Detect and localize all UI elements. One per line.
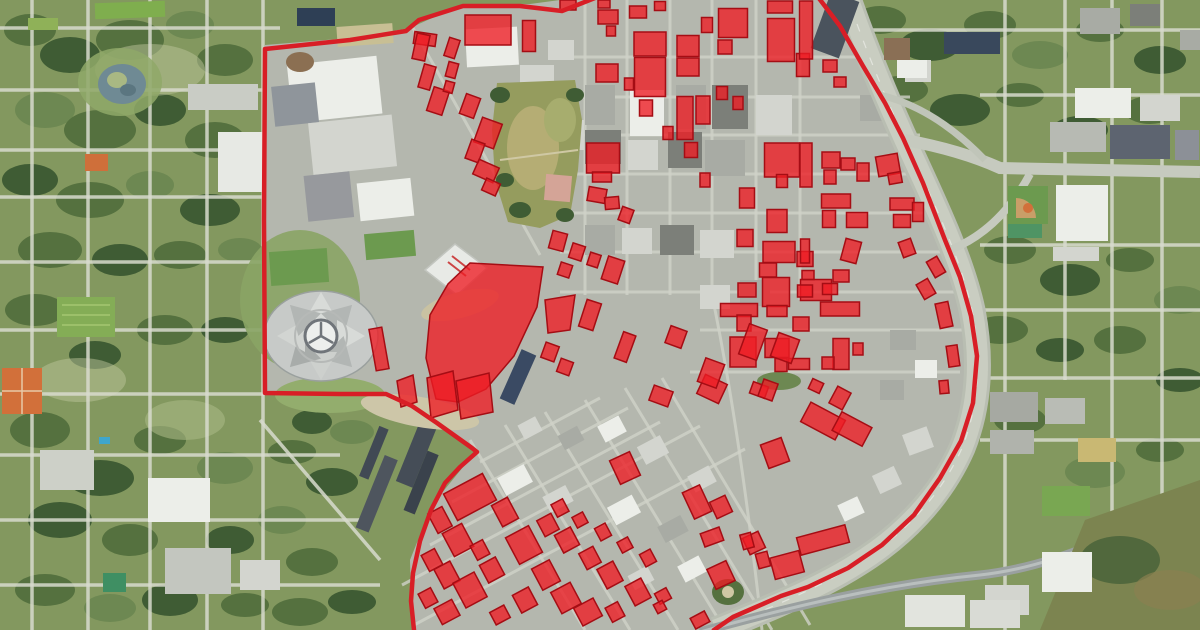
- parcel-polygon[interactable]: [605, 196, 620, 209]
- parcel-polygon[interactable]: [939, 380, 949, 394]
- parcel-polygon[interactable]: [427, 371, 458, 418]
- parcel-polygon[interactable]: [767, 210, 787, 233]
- parcel-polygon[interactable]: [822, 194, 851, 208]
- parcel-polygon[interactable]: [847, 213, 868, 228]
- centennial-park: [490, 80, 584, 228]
- tennis-courts: [85, 154, 108, 171]
- parcel-polygon[interactable]: [777, 175, 788, 188]
- parcel-polygon[interactable]: [763, 278, 790, 307]
- parcel-polygon[interactable]: [700, 173, 710, 187]
- parcel-polygon[interactable]: [946, 345, 960, 367]
- playing-field: [95, 1, 166, 19]
- parcel-polygon[interactable]: [763, 242, 795, 263]
- parcel-polygon[interactable]: [593, 172, 612, 182]
- playing-field: [57, 297, 115, 337]
- parcel-polygon[interactable]: [677, 36, 699, 57]
- parcel-polygon[interactable]: [640, 100, 653, 116]
- parcel-polygon[interactable]: [598, 0, 610, 8]
- parcel-polygon[interactable]: [824, 170, 836, 184]
- parcel-polygon[interactable]: [890, 198, 914, 210]
- parcel-polygon[interactable]: [718, 40, 732, 54]
- parcel-polygon[interactable]: [768, 19, 795, 62]
- parcel-polygon[interactable]: [853, 343, 863, 355]
- parcel-polygon[interactable]: [841, 158, 855, 170]
- parcel-polygon[interactable]: [822, 152, 840, 168]
- parcel-polygon[interactable]: [465, 15, 511, 45]
- parcel-polygon[interactable]: [443, 81, 455, 94]
- parcel-polygon[interactable]: [822, 357, 834, 369]
- parcel-polygon[interactable]: [456, 373, 493, 419]
- parcel-polygon[interactable]: [545, 295, 575, 333]
- parcel-polygon[interactable]: [740, 188, 755, 208]
- parcel-polygon[interactable]: [767, 306, 787, 317]
- parcel-polygon[interactable]: [802, 271, 814, 280]
- solar-panel-roof: [297, 8, 335, 26]
- sports-court: [1008, 224, 1042, 238]
- parcel-polygon[interactable]: [702, 18, 713, 33]
- parcel-polygon[interactable]: [630, 6, 647, 18]
- parcel-polygon[interactable]: [888, 171, 903, 184]
- parcel-polygon[interactable]: [821, 302, 860, 316]
- parcel-polygon[interactable]: [798, 285, 813, 297]
- parcel-polygon[interactable]: [625, 78, 634, 90]
- parcel-polygon[interactable]: [738, 283, 756, 297]
- parcel-polygon[interactable]: [523, 21, 536, 52]
- stadium: [264, 291, 378, 381]
- parcel-polygon[interactable]: [800, 143, 812, 187]
- pool: [99, 437, 110, 444]
- parcel-polygon[interactable]: [696, 96, 710, 124]
- parcel-polygon[interactable]: [737, 230, 753, 247]
- parcel-polygon[interactable]: [800, 1, 813, 59]
- parcel-polygon[interactable]: [634, 32, 666, 56]
- parcel-polygon[interactable]: [655, 2, 666, 11]
- parcel-polygon[interactable]: [765, 143, 800, 177]
- parcel-polygon[interactable]: [596, 64, 618, 82]
- parcel-polygon[interactable]: [717, 87, 728, 100]
- parcel-polygon[interactable]: [793, 317, 809, 331]
- parcel-polygon[interactable]: [719, 9, 748, 38]
- parcel-polygon[interactable]: [677, 58, 699, 76]
- parcel-polygon[interactable]: [635, 58, 666, 97]
- parcel-polygon[interactable]: [833, 270, 849, 282]
- parcel-polygon[interactable]: [607, 26, 616, 36]
- parcel-polygon[interactable]: [677, 97, 693, 140]
- parcel-polygon[interactable]: [833, 339, 849, 370]
- parcel-polygon[interactable]: [823, 60, 837, 72]
- parcel-polygon[interactable]: [894, 215, 911, 228]
- parcel-polygon[interactable]: [733, 97, 743, 110]
- sports-court: [103, 573, 126, 592]
- parcel-polygon[interactable]: [823, 284, 838, 295]
- parcel-polygon[interactable]: [801, 239, 810, 263]
- parcel-polygon[interactable]: [857, 163, 869, 181]
- parcel-polygon[interactable]: [823, 211, 836, 228]
- map-canvas[interactable]: [0, 0, 1200, 630]
- parcel-polygon[interactable]: [598, 10, 618, 24]
- parcel-polygon[interactable]: [685, 143, 698, 158]
- parcel-polygon[interactable]: [663, 127, 673, 140]
- map-viewport[interactable]: [0, 0, 1200, 630]
- parcel-polygon[interactable]: [913, 203, 924, 222]
- parcel-polygon[interactable]: [768, 1, 793, 13]
- parcel-polygon[interactable]: [587, 143, 620, 173]
- parcel-polygon[interactable]: [834, 77, 846, 87]
- parcel-polygon[interactable]: [760, 263, 777, 277]
